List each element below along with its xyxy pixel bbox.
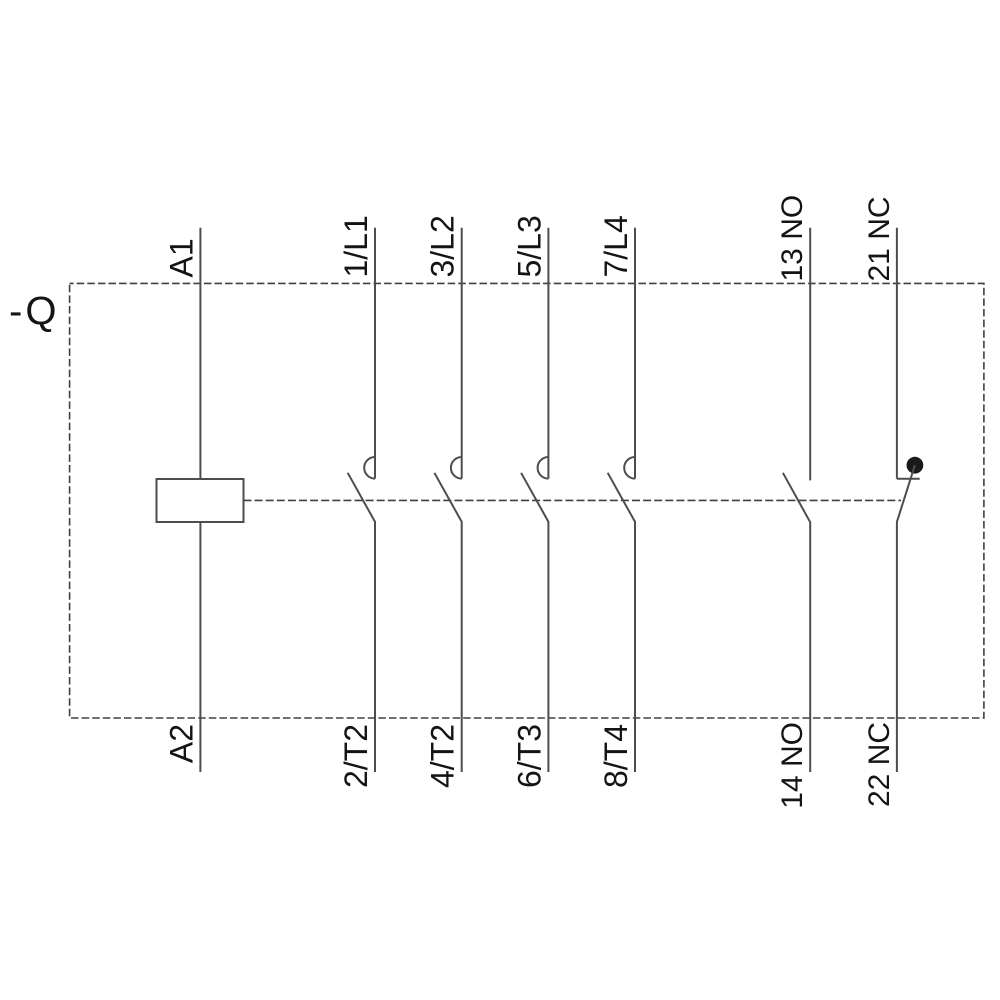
svg-text:-Q: -Q (9, 290, 59, 334)
svg-text:7/L4: 7/L4 (598, 215, 634, 277)
svg-text:1/L1: 1/L1 (338, 215, 374, 277)
svg-text:5/L3: 5/L3 (511, 215, 547, 277)
svg-text:8/T4: 8/T4 (598, 724, 634, 788)
svg-text:22 NC: 22 NC (863, 722, 896, 807)
svg-text:6/T3: 6/T3 (511, 724, 547, 788)
svg-text:21 NC: 21 NC (863, 196, 896, 281)
svg-text:3/L2: 3/L2 (425, 215, 461, 277)
svg-text:14 NO: 14 NO (776, 722, 809, 809)
svg-text:A1: A1 (163, 238, 199, 277)
svg-text:2/T2: 2/T2 (338, 724, 374, 788)
svg-text:A2: A2 (163, 724, 199, 763)
svg-text:4/T2: 4/T2 (425, 724, 461, 788)
svg-text:13 NO: 13 NO (776, 195, 809, 282)
